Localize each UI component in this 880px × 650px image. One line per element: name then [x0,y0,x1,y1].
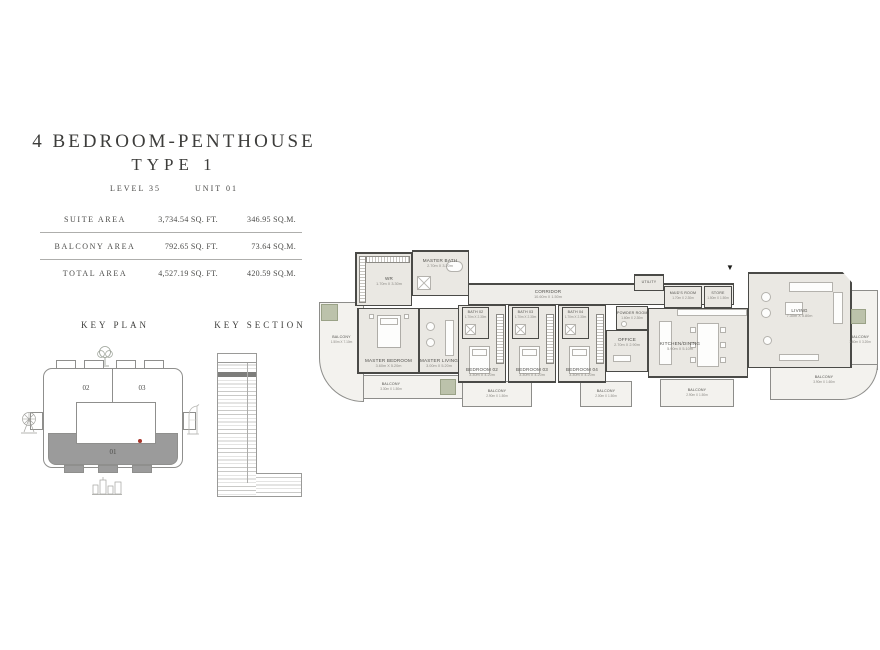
kitchen-counter-icon [677,309,747,316]
room-dims: 1.60m X 2.30m [617,316,647,320]
room-dims: 3.30m X 4.20m [509,373,555,378]
balcony-bedrooms-1: BALCONY 2.90m X 1.50m [462,381,532,407]
keyplan-balcony-tab [64,465,84,473]
area-sqm: 346.95 SQ.M. [218,215,296,224]
level-label: LEVEL 35 [110,184,161,193]
dining-chair-icon [690,327,696,333]
room-dims: 1.70m X 2.30m [513,315,538,319]
wardrobe-icon [596,314,604,364]
room-label: MAID'S ROOM [665,291,701,296]
armchair-icon [761,292,771,302]
burj-al-arab-icon [186,404,200,436]
room-dims: 3.30m X 1.50m [368,387,414,391]
balcony-kitchen: BALCONY 2.90m X 1.50m [660,379,734,407]
keyplan-balcony-tab [98,465,118,473]
room-dims: 2.90m X 1.50m [463,394,531,398]
plant-icon [440,379,456,395]
room-dims: 1.50m X 1.50m [705,296,731,300]
keyplan-unit-01: 01 [110,448,117,456]
keyplan-unit-divider [112,368,113,404]
room-dims: 10.60m X 1.50m [513,295,583,300]
room-dims: 3.00m X 5.20m [420,364,458,369]
area-sqft: 3,734.54 SQ. FT. [150,215,218,224]
room-store: STORE 1.50m X 1.50m [704,286,732,308]
room-bedroom-03: BATH 03 1.70m X 2.30m BEDROOM 03 3.30m X… [508,305,556,383]
room-bedroom-04: BATH 04 1.70m X 2.30m BEDROOM 04 3.30m X… [558,305,606,383]
armchair-icon [763,336,772,345]
room-powder: POWDER ROOM 1.60m X 2.30m [616,306,648,330]
keyplan-unit-02: 02 [83,384,90,392]
plant-icon [321,304,338,321]
dining-chair-icon [720,342,726,348]
area-row-label: BALCONY AREA [40,242,150,251]
dining-chair-icon [720,327,726,333]
area-sqm: 420.59 SQ.M. [218,269,296,278]
area-sqft: 792.65 SQ. FT. [150,242,218,251]
room-master-bath: MASTER BATH 2.70m X 3.20m [412,250,469,296]
room-office: OFFICE 2.70m X 2.90m [606,330,648,372]
dining-chair-icon [690,357,696,363]
room-bath-02: BATH 02 1.70m X 2.30m [462,307,489,339]
room-dims: 2.70m X 3.20m [415,264,465,269]
room-dims: 2.90m X 1.50m [661,393,733,397]
section-core-line [247,363,248,483]
room-dims: 3.30m X 4.20m [559,373,605,378]
shower-icon [515,324,526,335]
room-bath-04: BATH 04 1.70m X 2.30m [562,307,589,339]
room-dims: 1.70m X 3.30m [365,282,413,287]
room-label: POWDER ROOM [617,311,647,316]
room-dims: 1.70m X 2.30m [463,315,488,319]
floor-plan: BALCONY 1.50m X 7.10m BALCONY 3.30m X 1.… [318,246,878,456]
area-sqm: 73.64 SQ.M. [218,242,296,251]
shower-icon [465,324,476,335]
nightstand-icon [369,314,374,319]
nightstand-icon [404,314,409,319]
room-dims: 1.50m X 7.10m [320,340,363,344]
room-bedroom-02: BATH 02 1.70m X 2.30m BEDROOM 02 3.30m X… [458,305,506,383]
room-dims: 3.30m X 4.20m [459,373,505,378]
armchair-icon [426,322,435,331]
room-wr: WR 1.70m X 3.30m [355,252,412,306]
desk-icon [613,355,631,362]
key-section-title: KEY SECTION [205,320,315,330]
location-dot [138,439,142,443]
area-sqft: 4,527.19 SQ. FT. [150,269,218,278]
room-dims: 1.60m X 3.20m [843,340,877,344]
plant-icon [851,309,866,324]
keyplan-core [76,402,156,444]
room-bath-03: BATH 03 1.70m X 2.30m [512,307,539,339]
key-plan-title: KEY PLAN [20,320,210,330]
sofa-icon [445,320,454,356]
area-table: SUITE AREA 3,734.54 SQ. FT. 346.95 SQ.M.… [40,206,302,286]
key-plan: KEY PLAN 02 03 01 [20,320,210,515]
room-maids: MAID'S ROOM 1.70m X 2.30m [664,286,702,308]
wardrobe-icon [496,314,504,364]
dining-chair-icon [720,357,726,363]
city-skyline-icon [92,476,122,496]
section-podium [256,473,302,497]
balcony-bedrooms-2: BALCONY 2.00m X 1.50m [580,381,632,407]
room-dims: 7.30m X 5.80m [749,314,850,319]
room-dims: 5.90m X 5.10m [651,347,709,352]
tv-console-icon [779,354,819,361]
room-dims: 3.90m X 1.60m [771,380,877,384]
area-row-label: TOTAL AREA [40,269,150,278]
key-section: KEY SECTION [205,320,315,515]
unit-label: UNIT 01 [195,184,238,193]
entry-marker-icon: ▼ [726,264,734,272]
room-dims: 2.70m X 2.90m [607,343,647,348]
section-level-highlight [218,372,256,377]
balcony-living: BALCONY 3.90m X 1.60m [770,364,878,400]
keyplan-unit-03: 03 [139,384,146,392]
table-row: BALCONY AREA 792.65 SQ. FT. 73.64 SQ.M. [40,233,302,260]
room-dims: 2.00m X 1.50m [581,394,631,398]
bed-icon [377,315,401,348]
title-block: 4 BEDROOM-PENTHOUSE TYPE 1 LEVEL 35UNIT … [28,131,320,193]
page-title: 4 BEDROOM-PENTHOUSE [28,131,320,153]
table-row: TOTAL AREA 4,527.19 SQ. FT. 420.59 SQ.M. [40,260,302,286]
room-dims: 1.70m X 2.30m [665,296,701,300]
room-dims: 3.60m X 5.20m [359,364,418,369]
level-unit-row: LEVEL 35UNIT 01 [28,184,320,193]
room-utility: UTILITY [634,274,664,291]
room-master-bedroom: MASTER BEDROOM 3.60m X 5.20m [357,308,419,374]
table-row: SUITE AREA 3,734.54 SQ. FT. 346.95 SQ.M. [40,206,302,233]
toilet-icon [621,321,627,327]
room-label: UTILITY [635,280,663,285]
wardrobe-icon [366,256,410,263]
armchair-icon [426,338,435,347]
shower-icon [565,324,576,335]
room-master-living: MASTER LIVING 3.00m X 5.20m [419,308,459,374]
room-living: LIVING 7.30m X 5.80m [748,272,852,368]
shower-icon [417,276,431,290]
sofa-icon [789,282,833,292]
room-dims: 1.70m X 2.30m [563,315,588,319]
balcony-master: BALCONY 3.30m X 1.50m [363,375,463,399]
wardrobe-icon [546,314,554,364]
brochure-page: 4 BEDROOM-PENTHOUSE TYPE 1 LEVEL 35UNIT … [0,0,880,650]
ferris-wheel-icon [20,410,38,436]
section-tower-crown [217,353,257,363]
page-subtitle: TYPE 1 [28,155,320,175]
area-row-label: SUITE AREA [40,215,150,224]
room-kitchen-dining: KITCHEN/DINING 5.90m X 5.10m [648,308,748,378]
keyplan-balcony-tab [132,465,152,473]
